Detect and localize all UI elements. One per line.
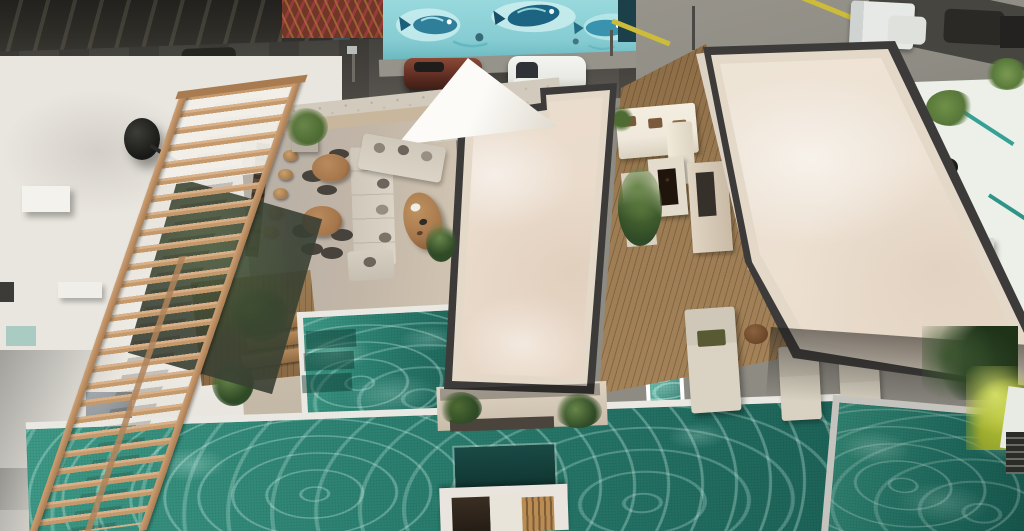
stair-interior-dark (452, 496, 491, 531)
roof-equipment (1006, 432, 1024, 474)
stair-opening-structure (439, 484, 569, 531)
ledge-bush (438, 392, 482, 424)
underwater-step (306, 329, 357, 350)
stair-interior-wood (522, 496, 555, 531)
sectional-sofa-end (347, 248, 395, 281)
bar-stool (278, 169, 293, 180)
round-dining-table (312, 154, 350, 182)
terrace-plant (426, 222, 456, 262)
water-tank (124, 118, 160, 160)
street-sign (347, 46, 357, 54)
ledge-bush (554, 394, 602, 428)
brick-graffiti-wall (282, 0, 388, 38)
street-pole (610, 30, 613, 56)
bar-stool (273, 188, 288, 199)
skylight (6, 326, 36, 346)
roof-structure (58, 282, 102, 298)
underwater-step (304, 351, 355, 372)
stair-interior-wall (489, 493, 522, 531)
roof-equipment (0, 282, 14, 302)
corner-plant (284, 108, 328, 146)
street-pole (352, 52, 355, 82)
underwater-step (302, 373, 353, 394)
rooftop-render-image (0, 0, 1024, 531)
roof-structure (22, 186, 70, 212)
